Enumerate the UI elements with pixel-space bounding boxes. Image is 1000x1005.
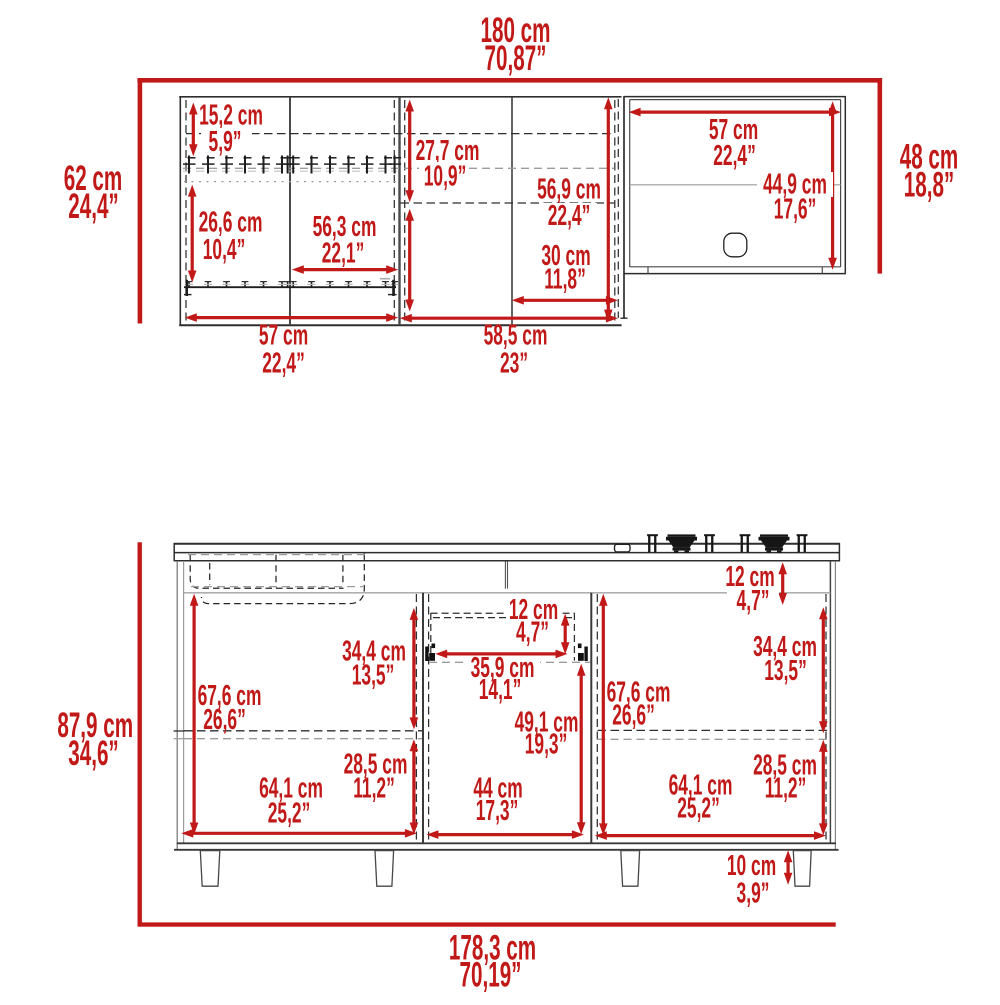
svg-text:26,6”: 26,6” [203,704,246,737]
svg-text:11,8”: 11,8” [544,263,586,296]
svg-text:22,1”: 22,1” [322,237,365,270]
svg-text:17,6”: 17,6” [774,193,817,226]
svg-text:11,2”: 11,2” [353,772,395,805]
svg-text:13,5”: 13,5” [764,655,807,688]
svg-text:11,2”: 11,2” [765,772,807,805]
svg-text:14,1”: 14,1” [479,674,522,707]
svg-text:3,9”: 3,9” [737,877,770,910]
svg-text:25,2”: 25,2” [677,792,720,825]
svg-text:22,4”: 22,4” [262,347,305,380]
svg-text:13,5”: 13,5” [352,659,395,692]
svg-text:10,9”: 10,9” [424,160,467,193]
svg-text:34,6”: 34,6” [68,735,118,774]
svg-text:22,4”: 22,4” [713,140,756,173]
svg-text:22,4”: 22,4” [548,200,591,233]
svg-text:4,7”: 4,7” [516,616,549,649]
svg-text:25,2”: 25,2” [268,797,311,830]
svg-text:70,19”: 70,19” [460,956,522,995]
svg-text:26,6”: 26,6” [612,699,655,732]
svg-text:10,4”: 10,4” [203,233,246,266]
svg-text:19,3”: 19,3” [525,728,568,761]
svg-text:5,9”: 5,9” [209,126,242,159]
svg-text:4,7”: 4,7” [737,584,770,617]
svg-text:23”: 23” [500,347,528,380]
svg-text:18,8”: 18,8” [904,166,954,205]
svg-text:70,87”: 70,87” [485,39,547,78]
svg-text:24,4”: 24,4” [68,187,118,226]
svg-text:17,3”: 17,3” [476,794,519,827]
